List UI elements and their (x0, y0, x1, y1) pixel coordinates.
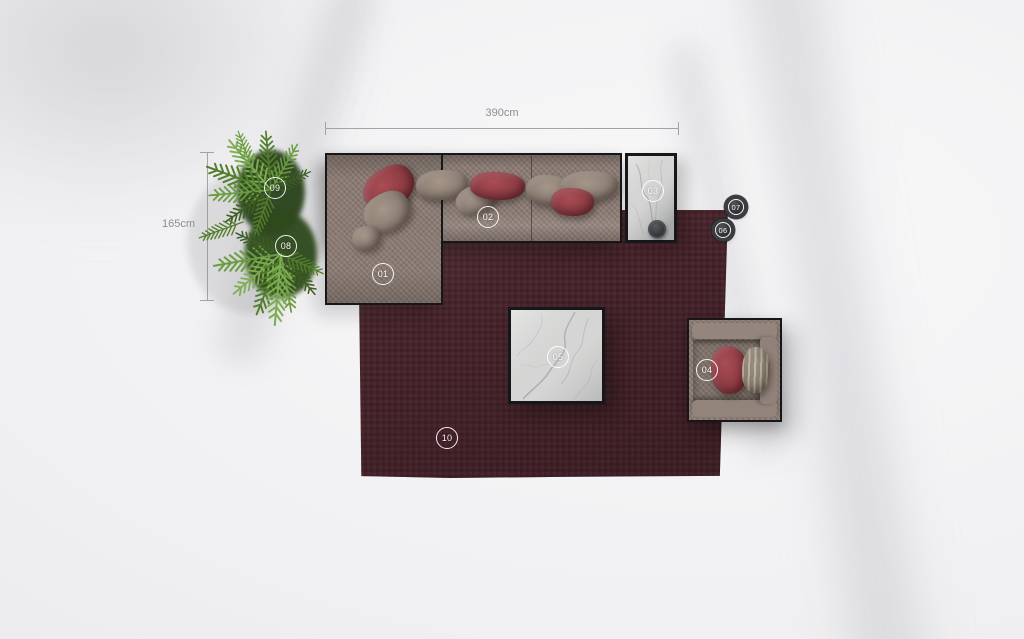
pillow-red (551, 187, 595, 216)
marker-01[interactable]: 01 (372, 263, 394, 285)
marker-08[interactable]: 08 (275, 235, 297, 257)
floor-plan-scene: 390cm 165cm 01020304050607080910 (0, 0, 1024, 639)
marker-09[interactable]: 09 (264, 177, 286, 199)
table-bowl (648, 220, 666, 238)
marker-04[interactable]: 04 (696, 359, 718, 381)
marker-06[interactable]: 06 (715, 222, 731, 238)
width-dimension: 390cm (325, 107, 679, 137)
marker-03[interactable]: 03 (642, 180, 664, 202)
marker-10[interactable]: 10 (436, 427, 458, 449)
palm-plant[interactable] (183, 112, 355, 330)
marker-02[interactable]: 02 (477, 206, 499, 228)
pillow-red (470, 171, 526, 201)
marker-07[interactable]: 07 (728, 199, 744, 215)
dimension-line (325, 128, 679, 129)
dimension-tick (678, 122, 679, 135)
width-dimension-label: 390cm (325, 107, 679, 119)
marker-05[interactable]: 05 (547, 346, 569, 368)
